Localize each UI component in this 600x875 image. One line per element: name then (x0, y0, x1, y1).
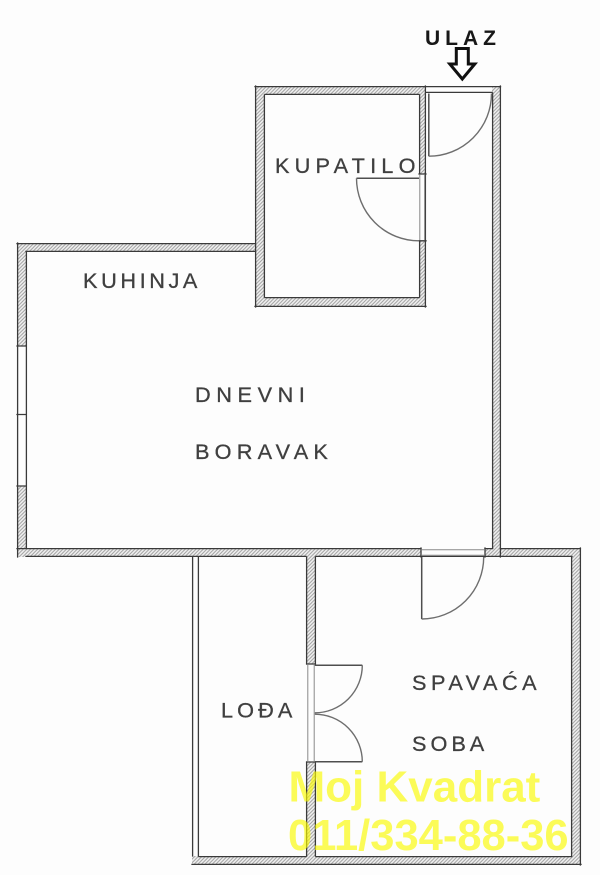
svg-text:LOĐA: LOĐA (221, 698, 296, 723)
svg-text:Moj Kvadrat: Moj Kvadrat (289, 763, 541, 812)
svg-text:DNEVNI: DNEVNI (195, 382, 311, 407)
svg-text:KUPATILO: KUPATILO (275, 153, 421, 178)
svg-text:KUHINJA: KUHINJA (83, 268, 201, 293)
svg-text:011/334-88-36: 011/334-88-36 (288, 812, 569, 860)
svg-text:SPAVAĆA: SPAVAĆA (412, 670, 541, 695)
svg-text:SOBA: SOBA (412, 731, 488, 756)
svg-text:BORAVAK: BORAVAK (195, 439, 333, 464)
svg-text:ULAZ: ULAZ (425, 27, 501, 50)
